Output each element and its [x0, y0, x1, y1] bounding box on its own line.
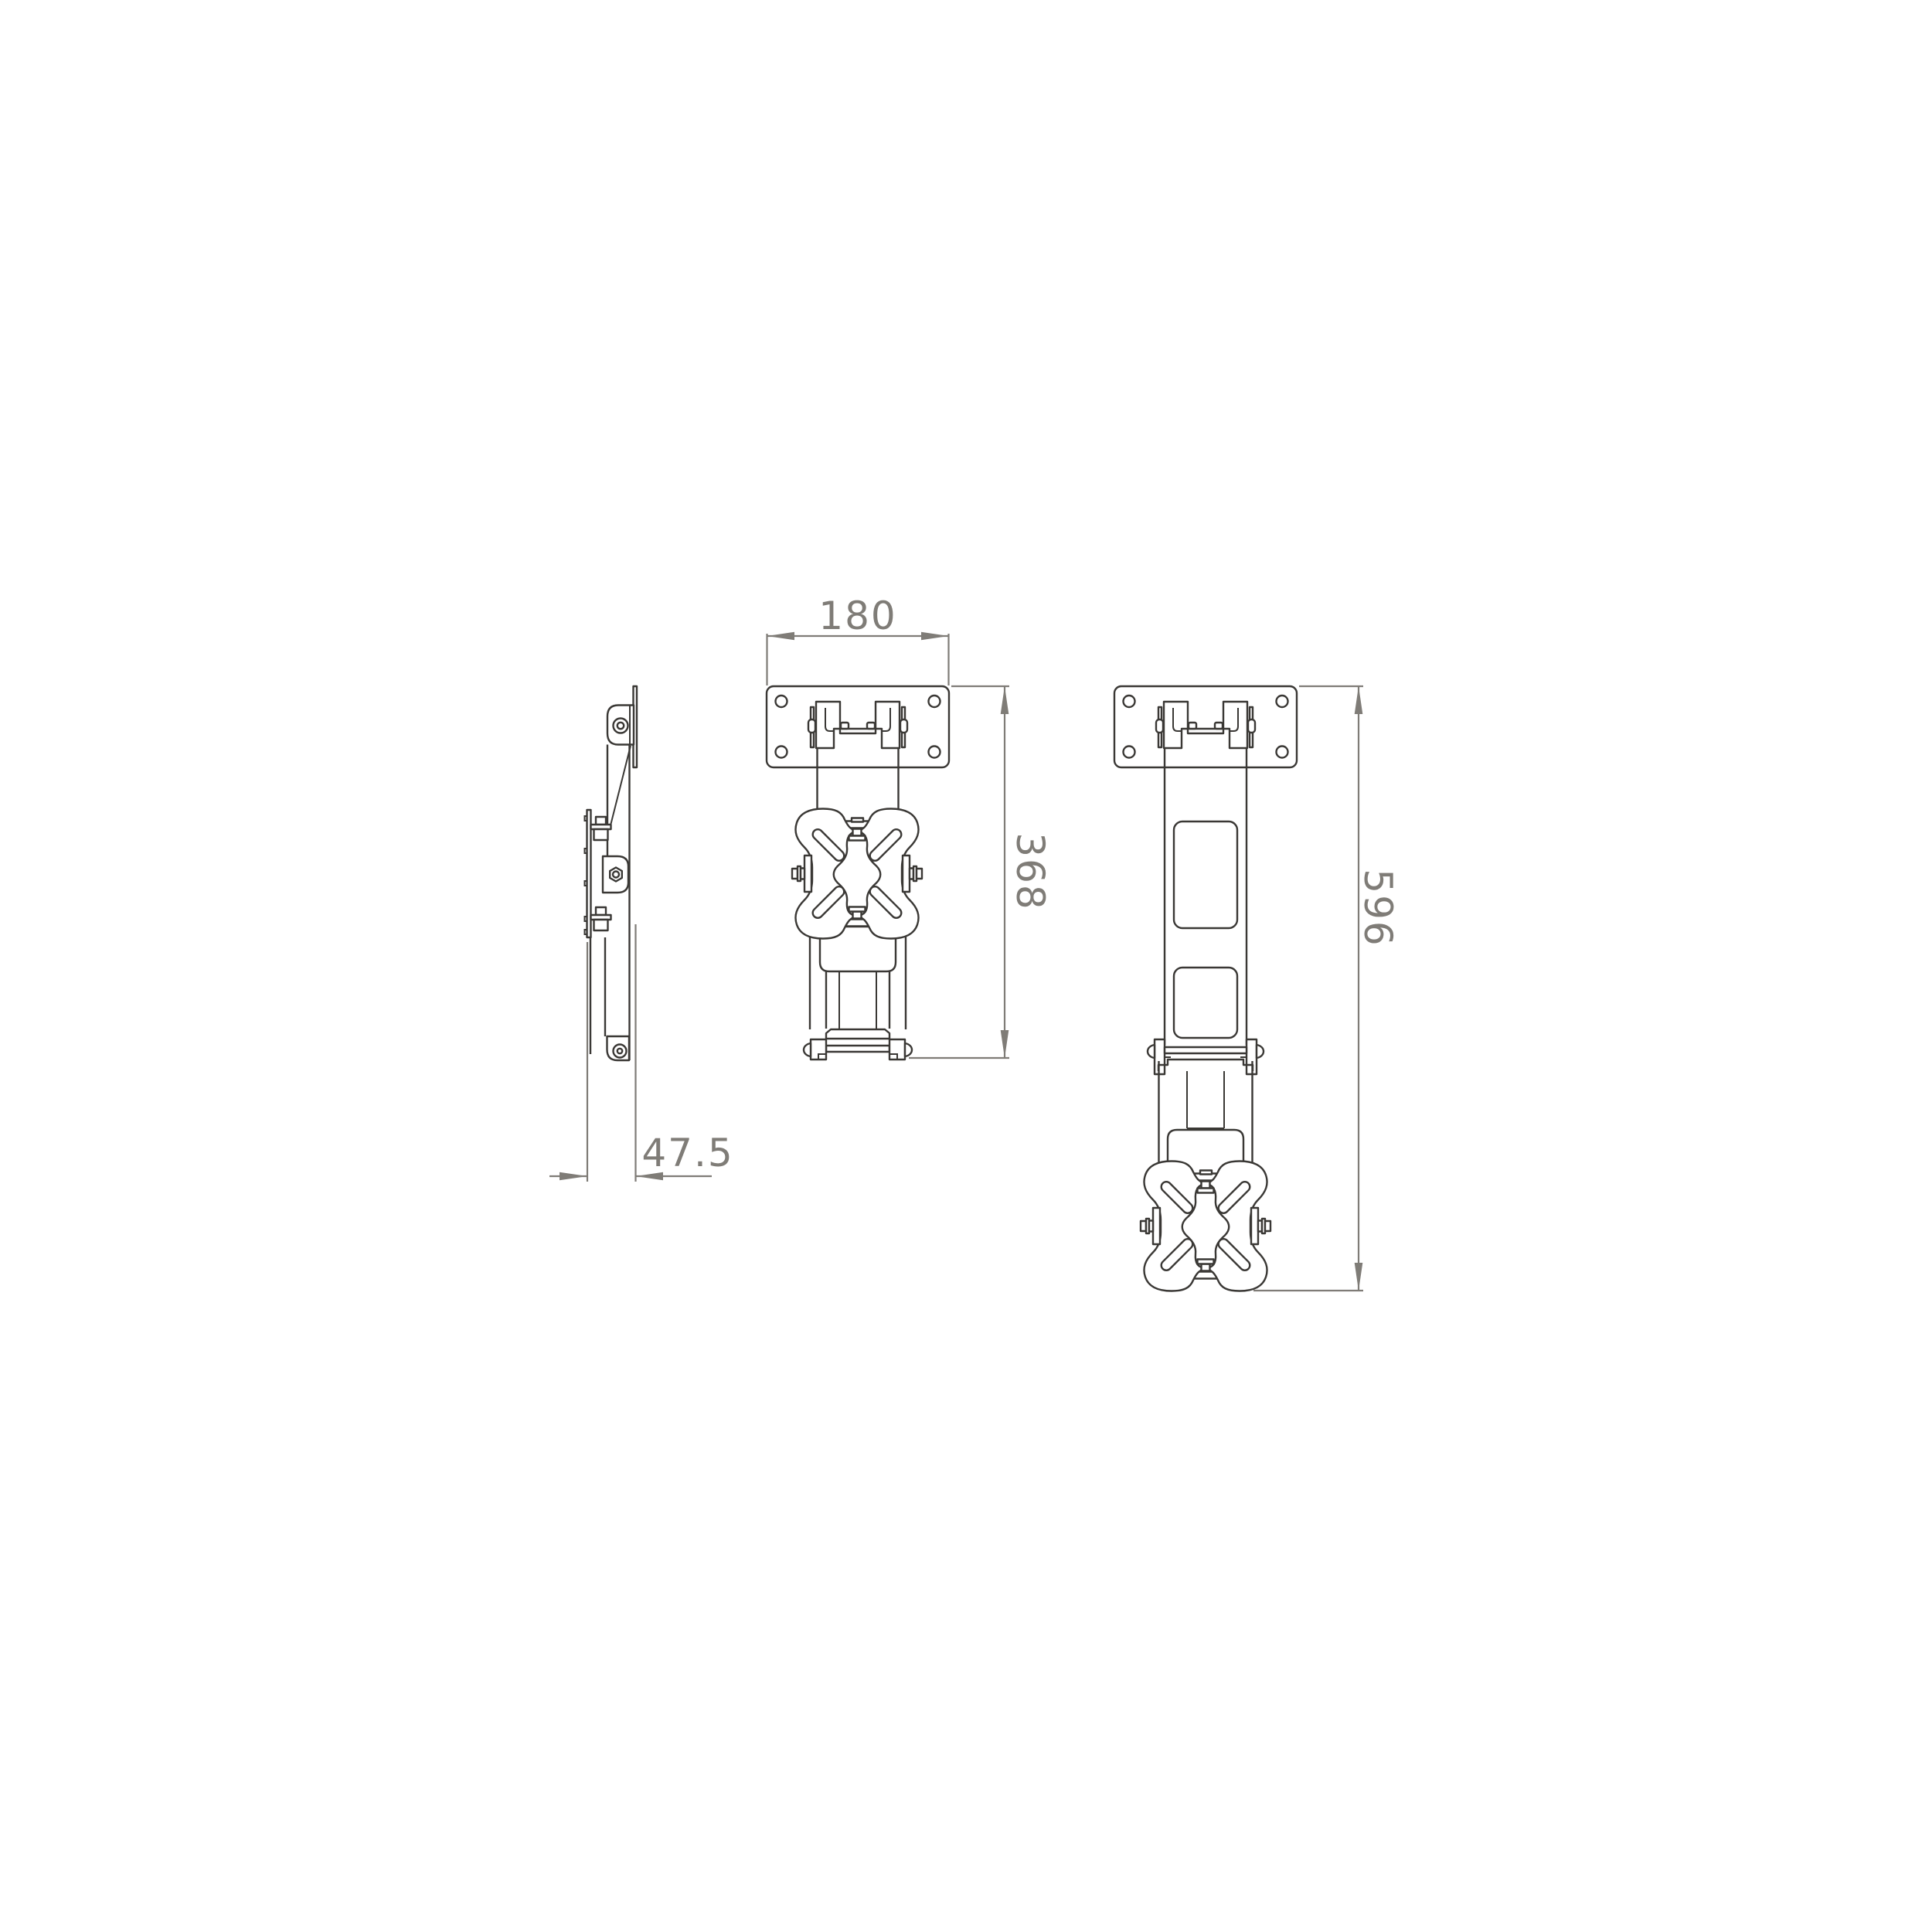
technical-drawing-page: 47.5	[0, 0, 1932, 1932]
dimension-label-depth: 47.5	[641, 1131, 733, 1175]
dimension-label-retracted-length: 368	[1008, 832, 1053, 910]
front-view-extended: 596	[1114, 686, 1400, 1291]
dimension-label-plate-width: 180	[818, 594, 896, 638]
dimension-label-extended-length: 596	[1355, 869, 1400, 947]
column-cutout-lower	[1174, 968, 1237, 1038]
vesa-plate-extended	[1141, 1162, 1270, 1291]
column-cutout-upper	[1174, 821, 1237, 928]
column-extended	[1165, 748, 1247, 1045]
dimension-plate-width: 180	[767, 594, 949, 685]
side-arm	[607, 745, 631, 1061]
dimension-depth: 47.5	[549, 924, 734, 1182]
wall-mount-bracket-drawing: 47.5	[0, 0, 1932, 1932]
vesa-plate-retracted	[792, 809, 922, 939]
dimension-extended-length: 596	[1253, 686, 1400, 1291]
front-view-retracted: 180 368	[767, 594, 1053, 1060]
side-pivot-bracket	[607, 706, 634, 745]
side-lower-arm	[590, 937, 629, 1060]
wall-plate	[767, 686, 949, 767]
side-bottom-clamp-bolt	[591, 907, 611, 930]
side-pivot-joint	[603, 856, 628, 893]
wall-plate-extended	[1114, 686, 1297, 767]
slider-clamp-extended	[1148, 1039, 1264, 1074]
side-view: 47.5	[549, 686, 734, 1182]
